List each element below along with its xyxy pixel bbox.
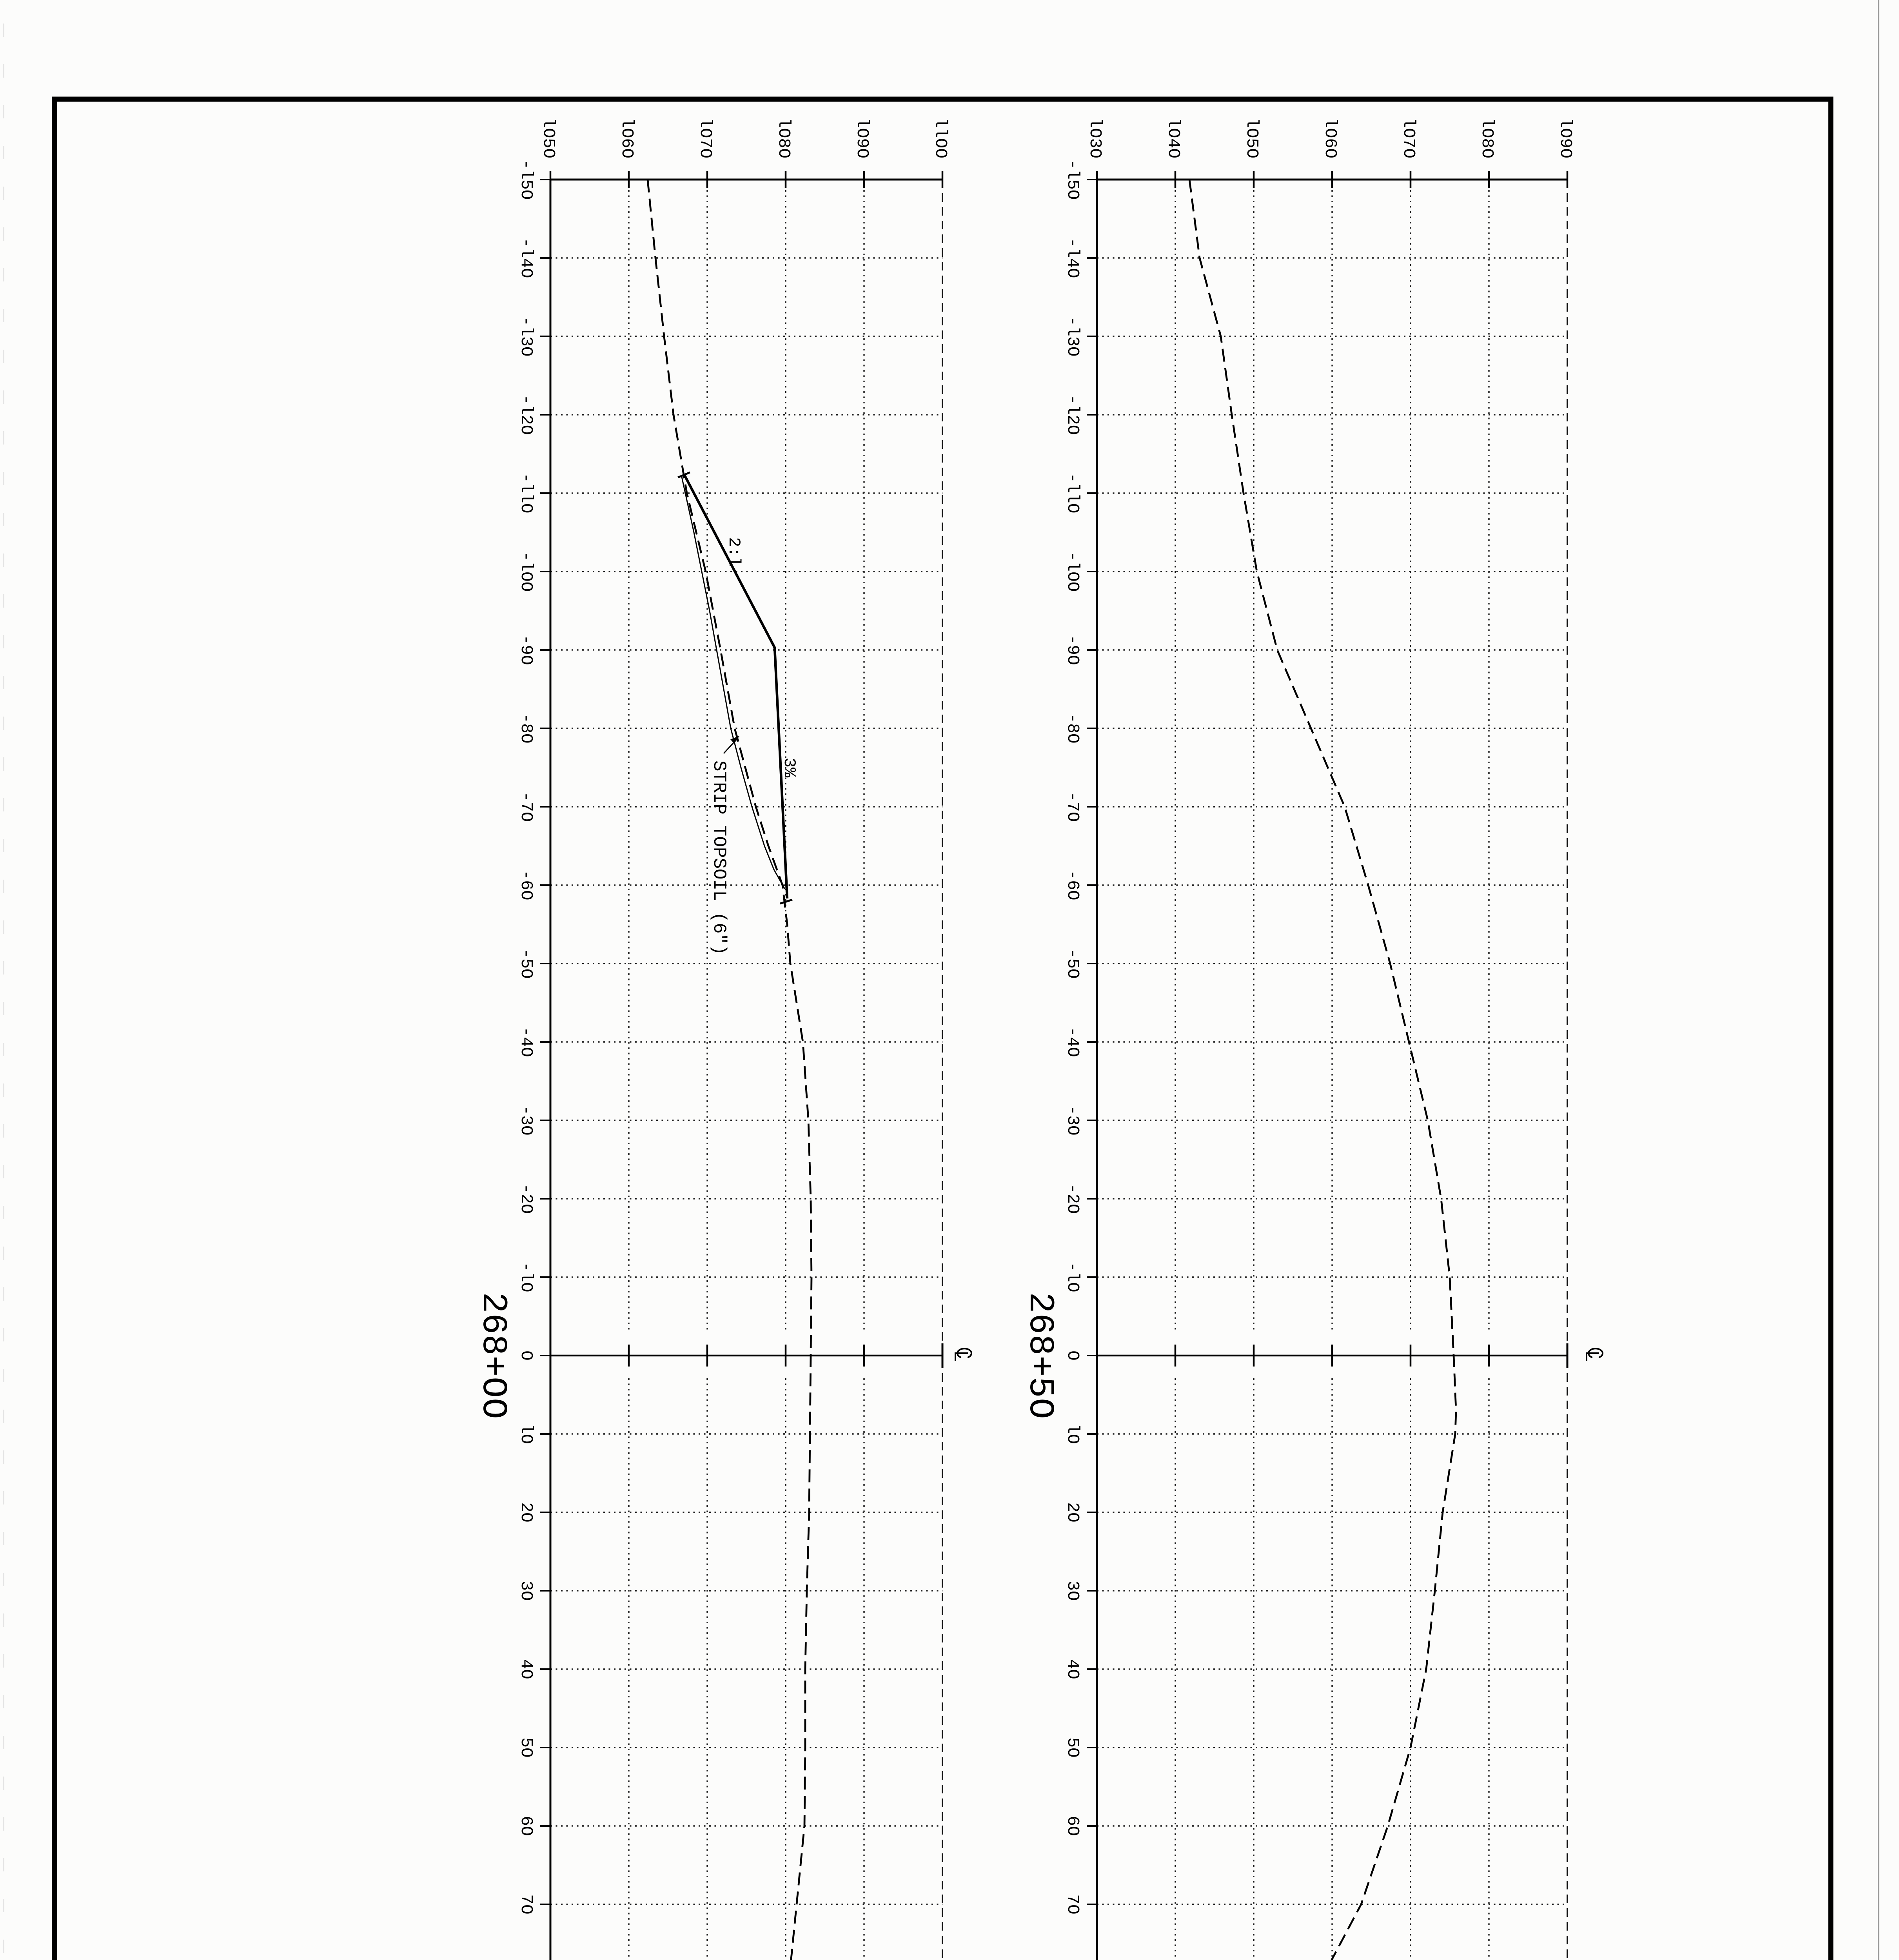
svg-text:-llO: -llO	[517, 473, 536, 513]
svg-text:STRIP TOPSOIL (6"): STRIP TOPSOIL (6")	[709, 760, 729, 955]
svg-text:lO3O: lO3O	[1086, 118, 1105, 158]
svg-text:lO7O: lO7O	[696, 118, 715, 158]
svg-text:O: O	[517, 1350, 536, 1361]
svg-text:-9O: -9O	[1063, 635, 1082, 665]
svg-text:-7O: -7O	[1063, 791, 1082, 822]
svg-text:-4O: -4O	[1063, 1027, 1082, 1057]
svg-text:-5O: -5O	[517, 948, 536, 978]
svg-text:lO5O: lO5O	[1242, 118, 1262, 158]
svg-text:O: O	[1063, 1350, 1082, 1361]
svg-text:268+OO: 268+OO	[473, 1292, 513, 1419]
svg-text:7O: 7O	[517, 1894, 536, 1915]
svg-text:-l3O: -l3O	[1063, 316, 1082, 356]
svg-text:lO8O: lO8O	[1478, 118, 1497, 158]
svg-text:-5O: -5O	[1063, 948, 1082, 978]
svg-text:-lO: -lO	[1063, 1262, 1082, 1292]
svg-text:4O: 4O	[517, 1659, 536, 1679]
svg-text:-3O: -3O	[1063, 1105, 1082, 1135]
svg-text:lO6O: lO6O	[617, 118, 637, 158]
svg-text:lO9O: lO9O	[853, 118, 872, 158]
svg-text:268+5O: 268+5O	[1020, 1292, 1060, 1419]
svg-text:lO5O: lO5O	[539, 118, 558, 158]
svg-text:-6O: -6O	[517, 870, 536, 900]
svg-text:llOO: llOO	[931, 118, 950, 158]
svg-text:-8O: -8O	[1063, 713, 1082, 743]
svg-text:-l4O: -l4O	[1063, 238, 1082, 278]
svg-text:-llO: -llO	[1063, 473, 1082, 513]
svg-text:-l2O: -l2O	[517, 394, 536, 435]
svg-text:-2O: -2O	[1063, 1183, 1082, 1214]
svg-text:3O: 3O	[517, 1581, 536, 1601]
svg-text:-l5O: -l5O	[1063, 159, 1082, 200]
svg-text:5O: 5O	[517, 1737, 536, 1758]
svg-text:lO6O: lO6O	[1321, 118, 1340, 158]
svg-text:-2O: -2O	[517, 1183, 536, 1214]
svg-text:3O: 3O	[1063, 1581, 1082, 1601]
svg-text:4O: 4O	[1063, 1659, 1082, 1679]
svg-text:2O: 2O	[1063, 1502, 1082, 1523]
svg-text:2:l: 2:l	[724, 537, 743, 567]
svg-text:lO: lO	[517, 1424, 536, 1444]
svg-text:-6O: -6O	[1063, 870, 1082, 900]
svg-text:7O: 7O	[1063, 1894, 1082, 1915]
svg-text:lO9O: lO9O	[1556, 118, 1575, 158]
svg-text:-l4O: -l4O	[517, 238, 536, 278]
svg-text:-l5O: -l5O	[517, 159, 536, 200]
svg-text:-7O: -7O	[517, 791, 536, 822]
svg-text:-l2O: -l2O	[1063, 394, 1082, 435]
svg-text:2O: 2O	[517, 1502, 536, 1523]
svg-text:6O: 6O	[1063, 1816, 1082, 1836]
svg-text:lO4O: lO4O	[1164, 118, 1183, 158]
svg-text:-lOO: -lOO	[1063, 551, 1082, 592]
svg-text:lO8O: lO8O	[774, 118, 793, 158]
svg-text:lO: lO	[1063, 1424, 1082, 1444]
svg-text:-9O: -9O	[517, 635, 536, 665]
svg-text:5O: 5O	[1063, 1737, 1082, 1758]
svg-text:lO7O: lO7O	[1399, 118, 1418, 158]
svg-text:-lOO: -lOO	[517, 551, 536, 592]
svg-text:6O: 6O	[517, 1816, 536, 1836]
svg-text:-8O: -8O	[517, 713, 536, 743]
svg-text:-4O: -4O	[517, 1027, 536, 1057]
svg-text:-l3O: -l3O	[517, 316, 536, 356]
svg-text:-3O: -3O	[517, 1105, 536, 1135]
svg-text:-lO: -lO	[517, 1262, 536, 1292]
svg-text:3%: 3%	[780, 758, 799, 778]
